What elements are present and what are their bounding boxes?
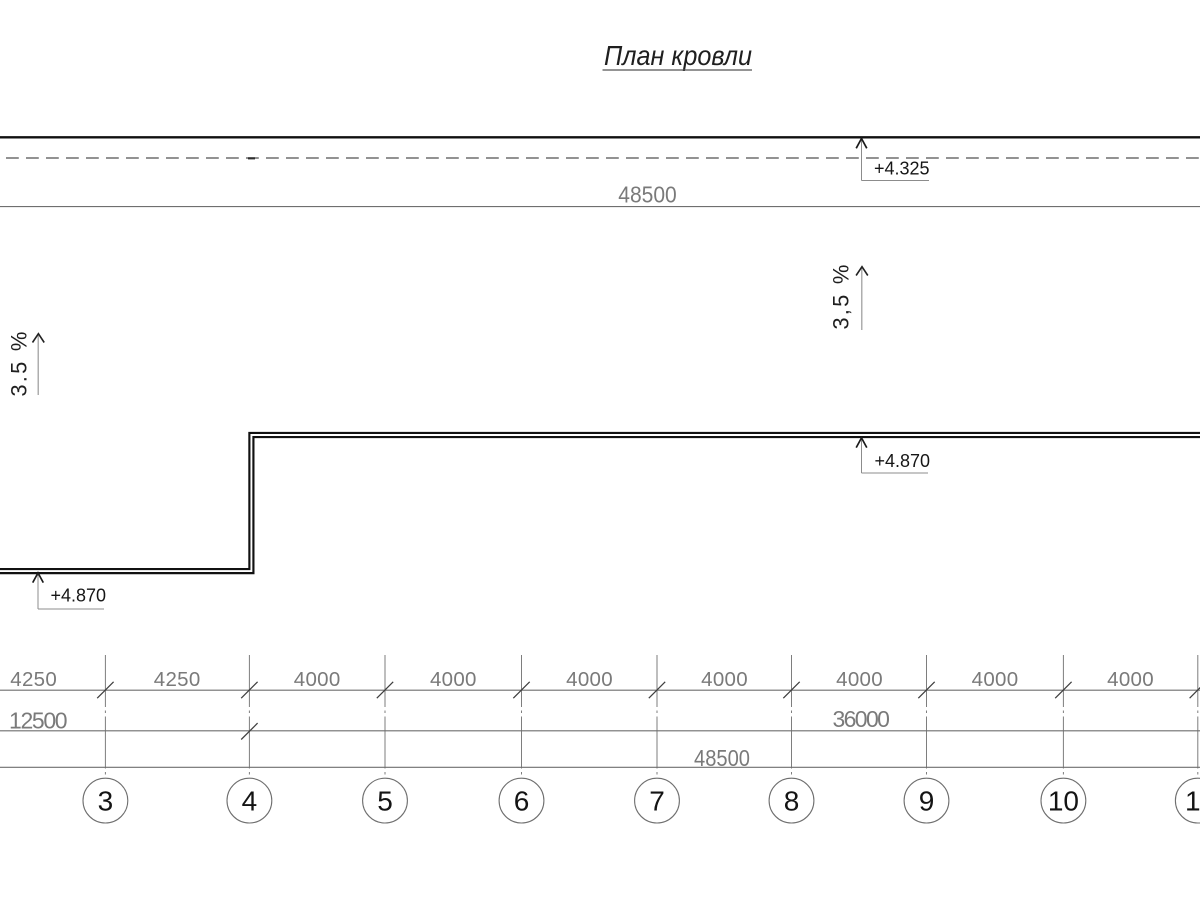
svg-text:4000: 4000 xyxy=(294,668,341,691)
svg-text:4000: 4000 xyxy=(701,668,748,691)
svg-text:7: 7 xyxy=(649,785,665,816)
svg-text:4000: 4000 xyxy=(1107,668,1154,691)
svg-text:5: 5 xyxy=(377,785,393,816)
svg-text:10: 10 xyxy=(1048,785,1079,816)
svg-text:4: 4 xyxy=(242,785,258,816)
svg-text:4000: 4000 xyxy=(836,668,883,691)
svg-text:4250: 4250 xyxy=(154,668,201,691)
svg-text:6: 6 xyxy=(514,785,530,816)
svg-text:3.5 %: 3.5 % xyxy=(7,329,32,396)
svg-text:+4.870: +4.870 xyxy=(51,586,107,606)
svg-text:3: 3 xyxy=(98,785,114,816)
svg-text:4000: 4000 xyxy=(430,668,477,691)
svg-text:+4.870: +4.870 xyxy=(875,451,931,471)
svg-text:48500: 48500 xyxy=(618,181,677,207)
svg-text:+4.325: +4.325 xyxy=(874,159,930,179)
svg-text:4000: 4000 xyxy=(972,668,1019,691)
svg-text:4000: 4000 xyxy=(566,668,613,691)
svg-text:11: 11 xyxy=(1185,785,1200,816)
svg-text:9: 9 xyxy=(919,785,935,816)
svg-text:3,5 %: 3,5 % xyxy=(829,262,854,329)
svg-text:План кровли: План кровли xyxy=(604,40,752,71)
svg-text:8: 8 xyxy=(784,785,800,816)
svg-text:48500: 48500 xyxy=(694,745,750,771)
svg-text:12500: 12500 xyxy=(9,707,68,733)
svg-text:4250: 4250 xyxy=(10,668,57,691)
svg-text:36000: 36000 xyxy=(832,706,890,732)
